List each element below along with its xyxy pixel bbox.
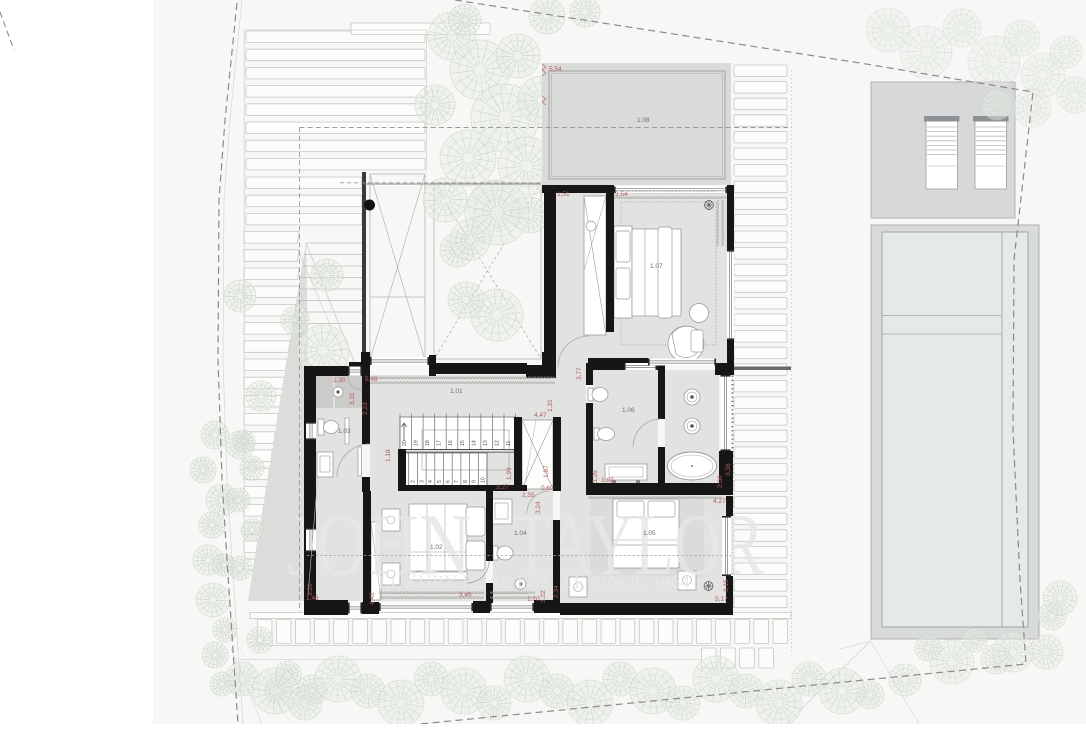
- svg-text:1,92: 1,92: [601, 477, 614, 484]
- svg-text:2,23: 2,23: [362, 402, 369, 415]
- svg-text:10: 10: [480, 477, 486, 483]
- svg-text:12: 12: [494, 440, 500, 446]
- svg-text:6: 6: [446, 480, 452, 483]
- svg-text:4: 4: [428, 480, 434, 483]
- svg-text:1.05: 1.05: [643, 530, 656, 537]
- svg-text:1.02: 1.02: [430, 544, 443, 551]
- svg-text:3: 3: [419, 480, 425, 483]
- svg-text:5,54: 5,54: [549, 66, 562, 73]
- svg-text:2,00: 2,00: [717, 475, 724, 488]
- svg-text:1.03: 1.03: [338, 428, 351, 435]
- svg-text:3,24: 3,24: [535, 501, 542, 514]
- svg-text:4,27: 4,27: [713, 498, 726, 505]
- svg-text:5: 5: [437, 480, 443, 483]
- svg-text:1.06: 1.06: [622, 407, 635, 414]
- svg-text:3,27: 3,27: [496, 484, 509, 491]
- svg-text:5,48: 5,48: [365, 376, 378, 383]
- svg-text:18: 18: [425, 440, 431, 446]
- svg-text:7: 7: [454, 480, 460, 483]
- svg-text:9: 9: [472, 480, 478, 483]
- svg-text:1,87: 1,87: [543, 465, 550, 478]
- svg-text:17: 17: [437, 440, 443, 446]
- svg-text:3,45: 3,45: [459, 592, 472, 599]
- svg-text:2,55: 2,55: [522, 492, 535, 499]
- svg-text:13: 13: [483, 440, 489, 446]
- svg-text:5,17: 5,17: [715, 596, 728, 603]
- svg-text:1,30: 1,30: [333, 377, 346, 384]
- svg-text:4,47: 4,47: [534, 412, 547, 419]
- svg-text:3,77: 3,77: [576, 367, 583, 380]
- svg-text:3,22: 3,22: [540, 590, 547, 603]
- svg-text:1,18: 1,18: [385, 449, 392, 462]
- svg-text:1.04: 1.04: [514, 530, 527, 537]
- svg-text:19: 19: [414, 440, 420, 446]
- svg-text:1.08: 1.08: [637, 117, 650, 124]
- svg-text:1,31: 1,31: [547, 399, 554, 412]
- svg-text:1,99: 1,99: [506, 467, 513, 480]
- svg-text:20: 20: [402, 440, 408, 446]
- svg-text:1,51: 1,51: [557, 191, 570, 198]
- svg-text:15: 15: [460, 440, 466, 446]
- svg-text:3,54: 3,54: [615, 191, 628, 198]
- svg-text:8: 8: [463, 480, 469, 483]
- svg-text:1.07: 1.07: [650, 263, 663, 270]
- svg-text:1.01: 1.01: [450, 388, 463, 395]
- svg-text:14: 14: [471, 440, 477, 446]
- svg-text:16: 16: [448, 440, 454, 446]
- svg-text:3,26: 3,26: [592, 470, 599, 483]
- svg-text:3,36: 3,36: [725, 463, 732, 476]
- svg-text:3,15: 3,15: [723, 579, 730, 592]
- svg-text:0,60: 0,60: [541, 485, 554, 492]
- svg-text:2,34: 2,34: [553, 585, 560, 598]
- svg-text:1,70: 1,70: [527, 596, 540, 603]
- svg-text:2: 2: [411, 480, 417, 483]
- svg-text:1,46: 1,46: [306, 595, 319, 602]
- svg-text:3,31: 3,31: [349, 392, 356, 405]
- svg-text:11: 11: [506, 441, 512, 446]
- svg-text:4,42: 4,42: [369, 592, 376, 605]
